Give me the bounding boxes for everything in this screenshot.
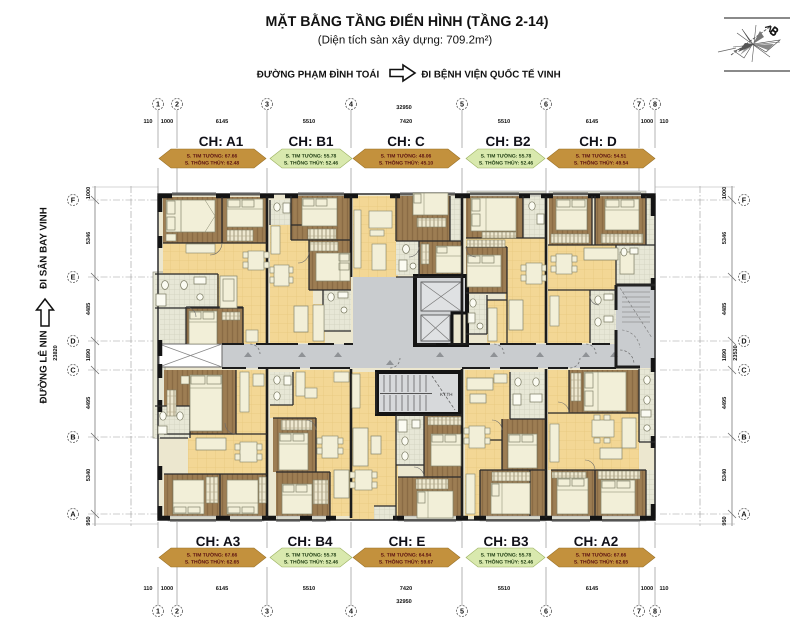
svg-text:A: A: [741, 510, 746, 519]
svg-text:6145: 6145: [586, 119, 598, 125]
svg-text:1: 1: [156, 100, 160, 109]
svg-text:CH: B1: CH: B1: [288, 134, 333, 149]
svg-text:5510: 5510: [303, 119, 315, 125]
svg-text:E: E: [742, 273, 747, 282]
svg-text:5510: 5510: [498, 119, 510, 125]
svg-text:MẶT BẰNG TẦNG ĐIỂN HÌNH (TẦNG: MẶT BẰNG TẦNG ĐIỂN HÌNH (TẦNG 2-14): [266, 13, 549, 30]
svg-text:8: 8: [653, 607, 657, 616]
svg-text:4: 4: [349, 100, 353, 109]
svg-text:CH: B4: CH: B4: [287, 534, 332, 549]
svg-text:5: 5: [460, 607, 464, 616]
svg-text:110: 110: [659, 119, 668, 125]
svg-text:F: F: [71, 196, 76, 205]
svg-text:110: 110: [143, 119, 152, 125]
svg-text:S. TIM TƯỜNG: 55.78: S. TIM TƯỜNG: 55.78: [286, 153, 337, 160]
svg-text:S. THÔNG THỦY: 52.46: S. THÔNG THỦY: 52.46: [284, 559, 339, 566]
svg-text:1000: 1000: [641, 586, 653, 592]
svg-text:1000: 1000: [161, 119, 173, 125]
svg-text:CH: A2: CH: A2: [574, 534, 619, 549]
svg-text:S. TIM TƯỜNG: 55.78: S. TIM TƯỜNG: 55.78: [481, 153, 532, 160]
svg-text:CH: C: CH: C: [387, 134, 425, 149]
svg-text:5510: 5510: [498, 586, 510, 592]
svg-text:4485: 4485: [722, 303, 728, 315]
svg-text:2: 2: [175, 100, 179, 109]
svg-text:CH: B2: CH: B2: [485, 134, 530, 149]
svg-text:S. TIM TƯỜNG: 55.78: S. TIM TƯỜNG: 55.78: [286, 552, 337, 559]
svg-text:7420: 7420: [400, 586, 412, 592]
svg-text:CH: A1: CH: A1: [199, 134, 244, 149]
svg-text:CH: D: CH: D: [579, 134, 617, 149]
svg-text:E: E: [71, 273, 76, 282]
svg-text:110: 110: [143, 586, 152, 592]
svg-text:S. TIM TƯỜNG: 67.66: S. TIM TƯỜNG: 67.66: [187, 552, 238, 559]
svg-text:110: 110: [659, 586, 668, 592]
svg-text:ĐI SÂN BAY VINH: ĐI SÂN BAY VINH: [38, 207, 50, 289]
svg-text:5: 5: [460, 100, 464, 109]
svg-text:4: 4: [349, 607, 353, 616]
svg-text:4485: 4485: [86, 303, 92, 315]
svg-text:S. TIM TƯỜNG: 67.66: S. TIM TƯỜNG: 67.66: [187, 153, 238, 160]
svg-text:S. THÔNG THỦY: 59.67: S. THÔNG THỦY: 59.67: [379, 559, 434, 566]
svg-text:6145: 6145: [216, 119, 228, 125]
svg-text:23820: 23820: [53, 345, 59, 361]
svg-text:5346: 5346: [86, 232, 92, 244]
svg-text:4495: 4495: [86, 397, 92, 409]
svg-text:D: D: [741, 337, 746, 346]
svg-text:S. THÔNG THỦY: 49.54: S. THÔNG THỦY: 49.54: [574, 160, 629, 167]
svg-text:1000: 1000: [641, 119, 653, 125]
svg-text:(Diện tích sàn xây dựng: 709.2: (Diện tích sàn xây dựng: 709.2m²): [318, 35, 493, 47]
svg-text:S. THÔNG THỦY: 45.10: S. THÔNG THỦY: 45.10: [379, 160, 434, 167]
svg-text:D: D: [70, 337, 75, 346]
svg-text:4495: 4495: [722, 397, 728, 409]
svg-text:5340: 5340: [86, 469, 92, 481]
svg-text:S. THÔNG THỦY: 52.46: S. THÔNG THỦY: 52.46: [479, 160, 534, 167]
svg-text:C: C: [70, 366, 75, 375]
svg-text:S. TIM TƯỜNG: 48.06: S. TIM TƯỜNG: 48.06: [381, 153, 432, 160]
svg-text:5340: 5340: [722, 469, 728, 481]
svg-text:1890: 1890: [86, 349, 92, 361]
svg-text:6145: 6145: [216, 586, 228, 592]
svg-text:ĐƯỜNG LÊ NIN: ĐƯỜNG LÊ NIN: [38, 330, 50, 403]
svg-text:32950: 32950: [396, 105, 412, 111]
svg-text:KT.TH: KT.TH: [440, 392, 453, 397]
svg-text:CH: A3: CH: A3: [196, 534, 241, 549]
svg-text:1: 1: [156, 607, 160, 616]
svg-text:2: 2: [175, 607, 179, 616]
svg-text:S. THÔNG THỦY: 62.65: S. THÔNG THỦY: 62.65: [574, 559, 629, 566]
svg-text:8: 8: [653, 100, 657, 109]
svg-text:7420: 7420: [400, 119, 412, 125]
svg-text:23530: 23530: [733, 345, 739, 361]
svg-text:A: A: [70, 510, 75, 519]
svg-text:S. THÔNG THỦY: 62.48: S. THÔNG THỦY: 62.48: [185, 160, 240, 167]
svg-text:ĐƯỜNG PHẠM ĐÌNH TOÁI: ĐƯỜNG PHẠM ĐÌNH TOÁI: [257, 69, 380, 81]
svg-text:S. THÔNG THỦY: 52.46: S. THÔNG THỦY: 52.46: [479, 559, 534, 566]
svg-text:5346: 5346: [722, 232, 728, 244]
svg-text:F: F: [742, 196, 747, 205]
svg-text:B: B: [741, 433, 746, 442]
svg-text:S. THÔNG THỦY: 62.65: S. THÔNG THỦY: 62.65: [185, 559, 240, 566]
svg-text:6: 6: [544, 100, 548, 109]
svg-text:6145: 6145: [586, 586, 598, 592]
svg-text:6: 6: [544, 607, 548, 616]
svg-text:5510: 5510: [303, 586, 315, 592]
svg-text:1000: 1000: [161, 586, 173, 592]
svg-text:S. TIM TƯỜNG: 64.94: S. TIM TƯỜNG: 64.94: [381, 552, 432, 559]
svg-text:B: B: [70, 433, 75, 442]
svg-text:1000: 1000: [722, 187, 728, 199]
svg-text:7: 7: [637, 100, 641, 109]
svg-text:S. TIM TƯỜNG: 54.51: S. TIM TƯỜNG: 54.51: [576, 153, 627, 160]
svg-text:S. TIM TƯỜNG: 55.78: S. TIM TƯỜNG: 55.78: [481, 552, 532, 559]
svg-text:S. TIM TƯỜNG: 67.66: S. TIM TƯỜNG: 67.66: [576, 552, 627, 559]
svg-text:950: 950: [86, 516, 92, 525]
svg-text:C: C: [741, 366, 746, 375]
svg-text:7: 7: [637, 607, 641, 616]
svg-text:ĐI BỆNH VIỆN QUỐC TẾ VINH: ĐI BỆNH VIỆN QUỐC TẾ VINH: [421, 69, 560, 81]
svg-text:1890: 1890: [722, 349, 728, 361]
svg-text:CH: B3: CH: B3: [483, 534, 528, 549]
svg-text:S. THÔNG THỦY: 52.46: S. THÔNG THỦY: 52.46: [284, 160, 339, 167]
svg-text:3: 3: [265, 100, 269, 109]
svg-text:3: 3: [265, 607, 269, 616]
svg-text:32950: 32950: [396, 599, 412, 605]
svg-text:CH: E: CH: E: [389, 534, 426, 549]
svg-text:1000: 1000: [86, 187, 92, 199]
